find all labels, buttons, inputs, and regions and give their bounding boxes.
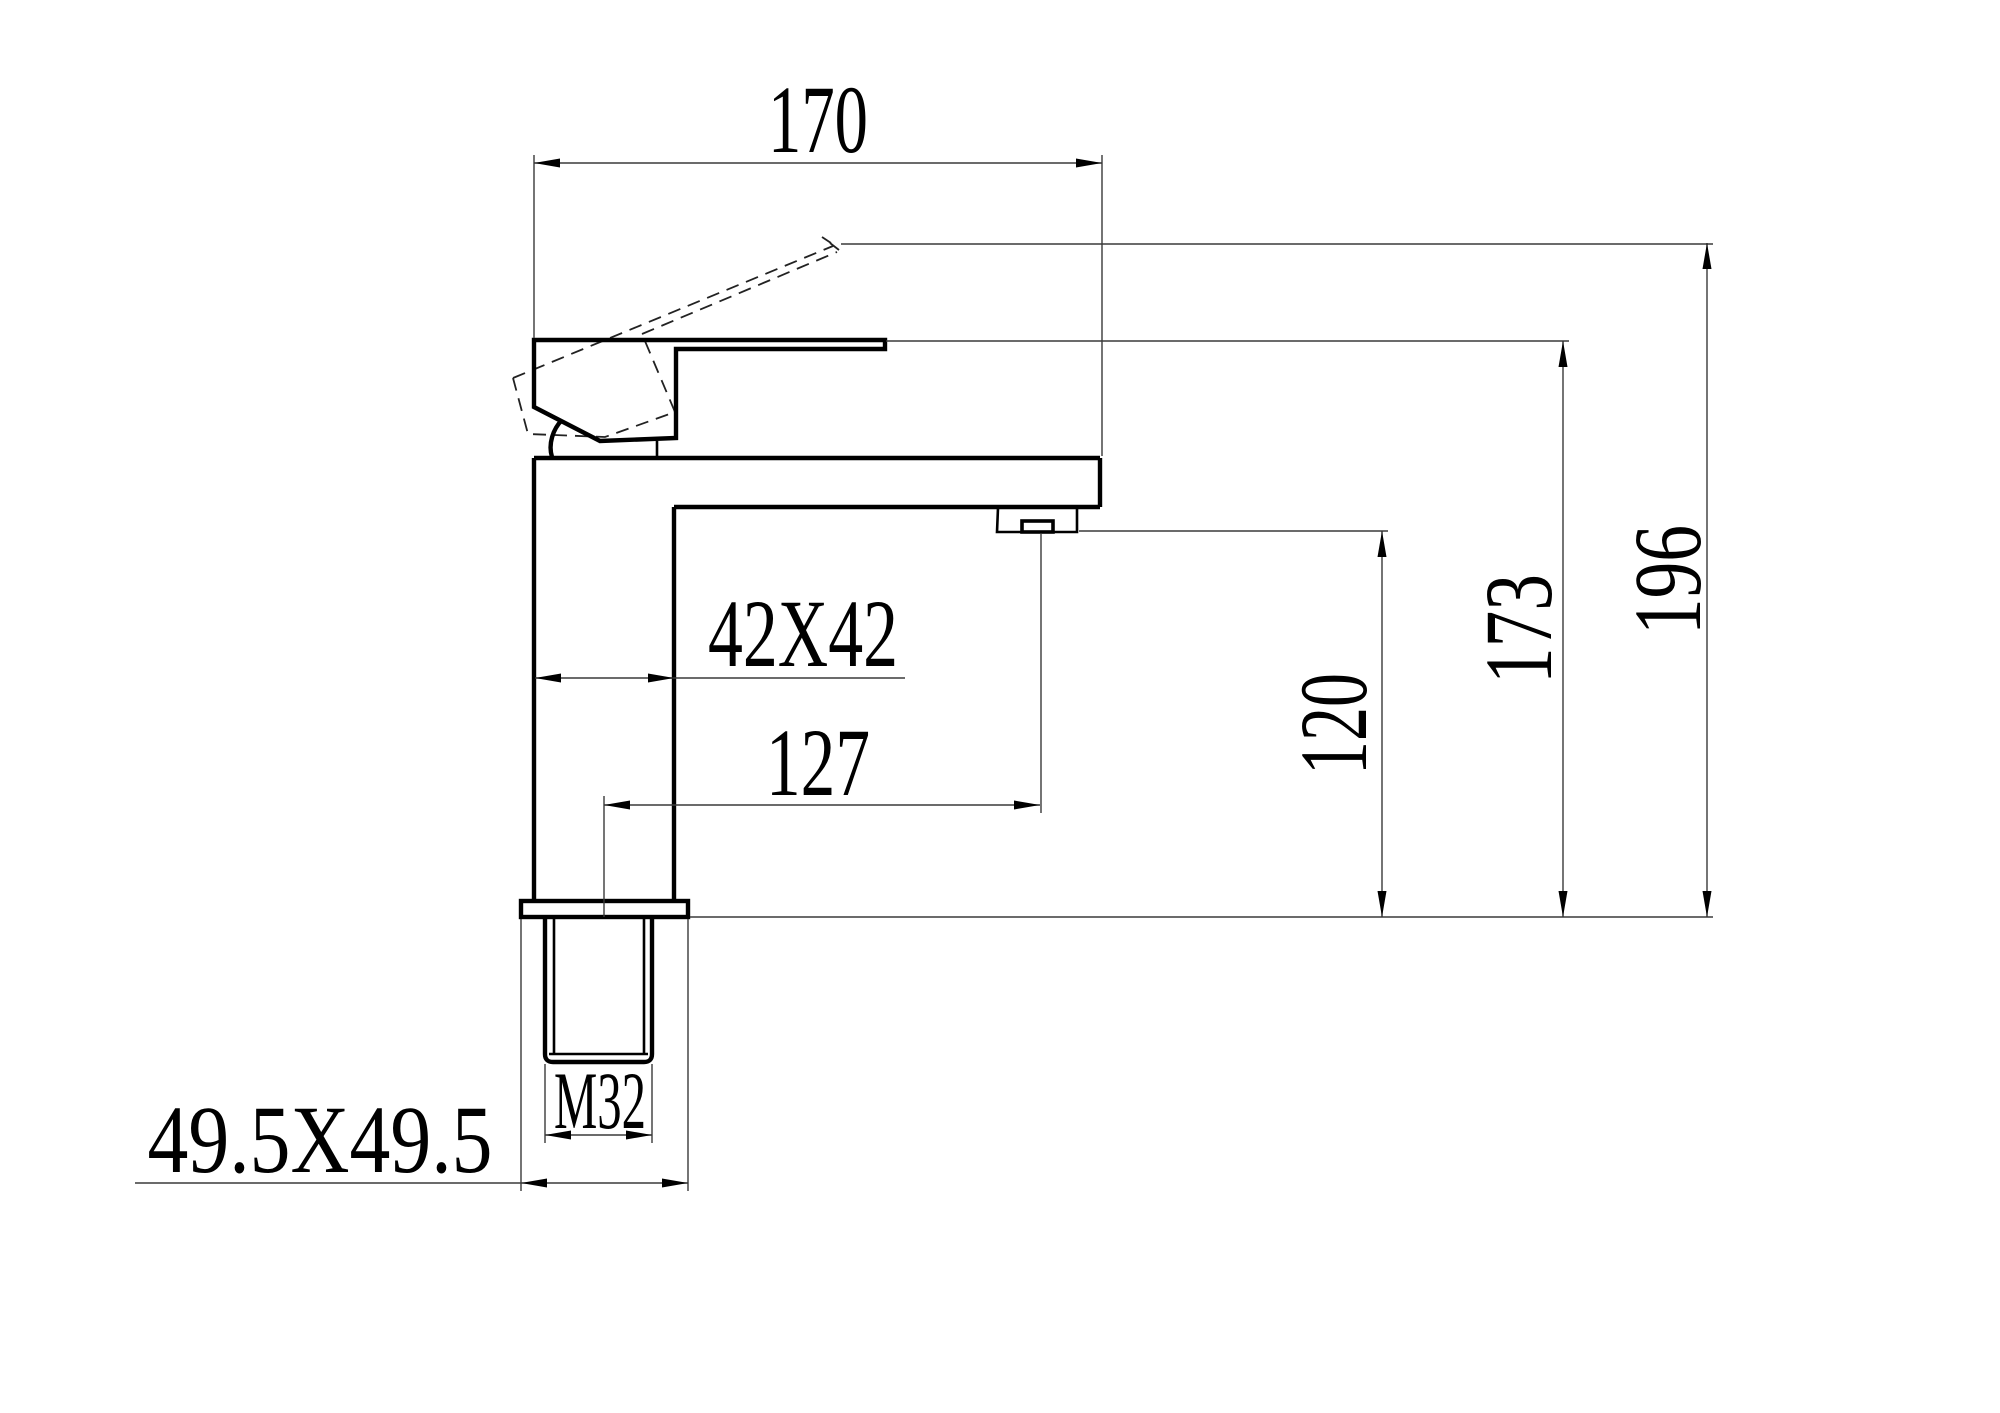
dim-text-base-plate: 49.5X49.5 — [148, 1086, 493, 1193]
arrow-127-left — [604, 801, 630, 810]
arrow-196-top — [1703, 243, 1712, 269]
handle-front-arc — [551, 420, 562, 457]
thread-shank-outline — [545, 917, 652, 1062]
handle-lever-outline — [534, 340, 885, 441]
raised-lever-upper-edge — [642, 252, 837, 334]
arrow-42-right — [648, 674, 674, 683]
arrow-196-bottom — [1703, 891, 1712, 917]
arrow-173-top — [1559, 341, 1568, 367]
faucet-dimension-drawing: 170 42X42 127 120 173 196 M32 49.5X49.5 — [0, 0, 2000, 1413]
technical-drawing-page: 170 42X42 127 120 173 196 M32 49.5X49.5 — [0, 0, 2000, 1413]
arrow-127-right — [1014, 801, 1040, 810]
raised-lever-tip-notch — [822, 237, 831, 243]
faucet-outline — [521, 340, 1100, 1062]
arrow-120-bottom — [1378, 891, 1387, 917]
arrow-120-top — [1378, 531, 1387, 557]
arrow-170-left — [534, 159, 560, 168]
arrow-173-bottom — [1559, 891, 1568, 917]
dim-text-spout-reach: 127 — [766, 709, 870, 816]
arrow-49_5-right — [662, 1179, 688, 1188]
arrow-42-left — [535, 674, 561, 683]
dim-text-body-section: 42X42 — [708, 580, 898, 687]
dim-text-deck-to-body-top: 173 — [1465, 574, 1572, 684]
arrow-170-right — [1076, 159, 1102, 168]
dim-text-overall-height: 196 — [1614, 525, 1721, 635]
handle-body-rotated-dashed — [513, 334, 675, 437]
dim-text-thread-size: M32 — [554, 1055, 646, 1146]
dim-text-top-width: 170 — [768, 66, 868, 173]
raised-lever-lower-edge — [513, 246, 833, 378]
dim-text-outlet-height: 120 — [1280, 673, 1387, 775]
arrow-49_5-left — [521, 1179, 547, 1188]
aerator-screen — [1022, 521, 1053, 532]
dimension-texts: 170 42X42 127 120 173 196 M32 49.5X49.5 — [148, 66, 1722, 1193]
